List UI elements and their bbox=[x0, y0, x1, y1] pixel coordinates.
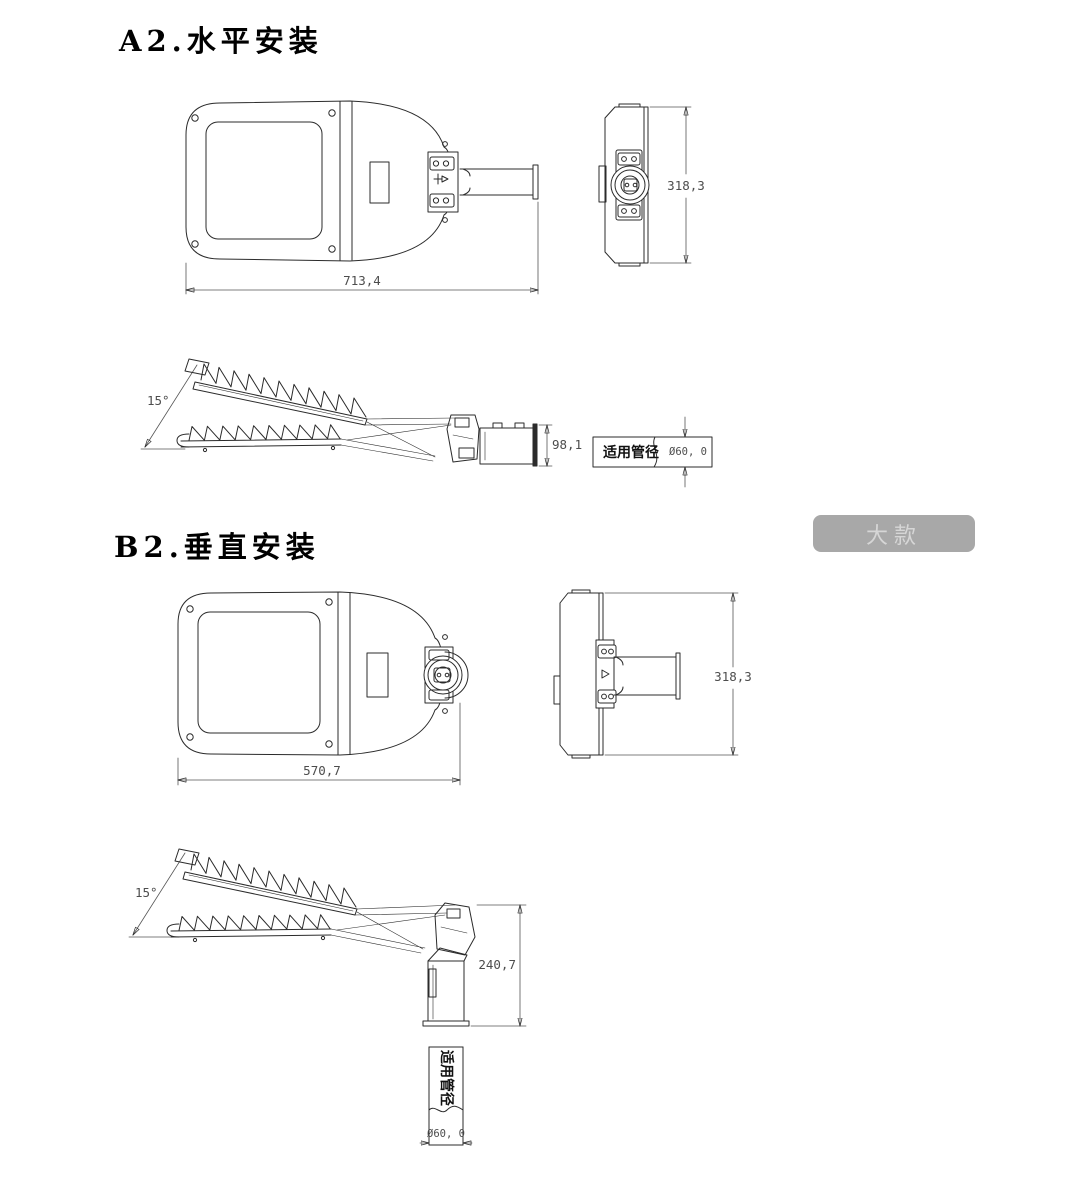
heatsink-fins-lower bbox=[167, 915, 331, 942]
heatsink-fins-lower bbox=[177, 425, 341, 452]
dimension-length: 713,4 bbox=[186, 202, 538, 294]
a2-pipe-label: 适用管径 bbox=[603, 444, 659, 461]
mounting-bracket-plan bbox=[428, 142, 458, 223]
a2-angle-dim-text: 15° bbox=[147, 393, 170, 408]
lens-panel bbox=[198, 612, 320, 733]
b2-profile-drawing: 15° 240,7 bbox=[125, 845, 537, 1037]
break-line bbox=[429, 1106, 463, 1112]
size-badge-label: 大款 bbox=[866, 518, 922, 550]
b2-pipe-label: 适用管径 bbox=[438, 1050, 455, 1106]
mounting-bracket-end bbox=[596, 640, 616, 708]
vertical-mount-plan bbox=[424, 635, 468, 714]
b2-pipe-diameter-text: Ø60, 0 bbox=[427, 1128, 465, 1140]
a2-length-dim-text: 713,4 bbox=[343, 273, 381, 288]
mounting-arm-profile bbox=[480, 423, 537, 466]
dimension-height: 318,3 bbox=[650, 107, 705, 263]
a2-profile-drawing: 15° bbox=[135, 355, 595, 500]
b2-pipe-section-drawing: 适用管径 Ø60, 0 bbox=[420, 1042, 492, 1160]
section-a2-title: A2.水平安装 bbox=[119, 18, 323, 60]
b2-height-dim-text: 318,3 bbox=[714, 669, 752, 684]
vertical-mount-sleeve bbox=[423, 948, 469, 1026]
a2-height-dim-text: 318,3 bbox=[667, 178, 705, 193]
lamp-housing-profile bbox=[341, 415, 479, 462]
a2-top-view-drawing: 713,4 bbox=[180, 95, 545, 300]
lens-panel bbox=[206, 122, 322, 239]
size-badge: 大款 bbox=[813, 515, 975, 552]
dimension-height: 318,3 bbox=[605, 593, 752, 755]
heatsink-fins-upper bbox=[185, 359, 367, 425]
b2-angle-dim-text: 15° bbox=[135, 885, 158, 900]
a2-pipe-section-drawing: 适用管径 Ø60, 0 bbox=[590, 400, 718, 498]
dimension-length: 570,7 bbox=[178, 703, 460, 785]
heatsink-fins-upper bbox=[175, 849, 357, 915]
b2-top-view-drawing: 570,7 bbox=[175, 588, 475, 788]
mounting-bracket-end bbox=[611, 150, 649, 220]
mounting-arm-plan bbox=[460, 165, 538, 199]
driver-box bbox=[370, 162, 389, 203]
driver-box bbox=[367, 653, 388, 697]
lamp-body-plan bbox=[186, 101, 452, 261]
technical-drawing-page: A2.水平安装 bbox=[0, 0, 1088, 1181]
mounting-arm-end bbox=[614, 653, 680, 699]
tilt-angle-dimension: 15° bbox=[141, 365, 197, 449]
b2-end-view-drawing: 318,3 bbox=[552, 588, 757, 768]
b2-mount-height-dim-text: 240,7 bbox=[478, 957, 516, 972]
b2-length-dim-text: 570,7 bbox=[303, 763, 341, 778]
a2-pipe-diameter-text: Ø60, 0 bbox=[669, 446, 707, 458]
a2-head-height-dim-text: 98,1 bbox=[552, 437, 582, 452]
dimension-mount-height: 240,7 bbox=[471, 905, 526, 1026]
dimension-head-height: 98,1 bbox=[539, 425, 582, 466]
lamp-body-plan bbox=[178, 592, 443, 755]
section-b2-title: B2.垂直安装 bbox=[114, 524, 320, 566]
a2-end-view-drawing: 318,3 bbox=[594, 96, 714, 276]
